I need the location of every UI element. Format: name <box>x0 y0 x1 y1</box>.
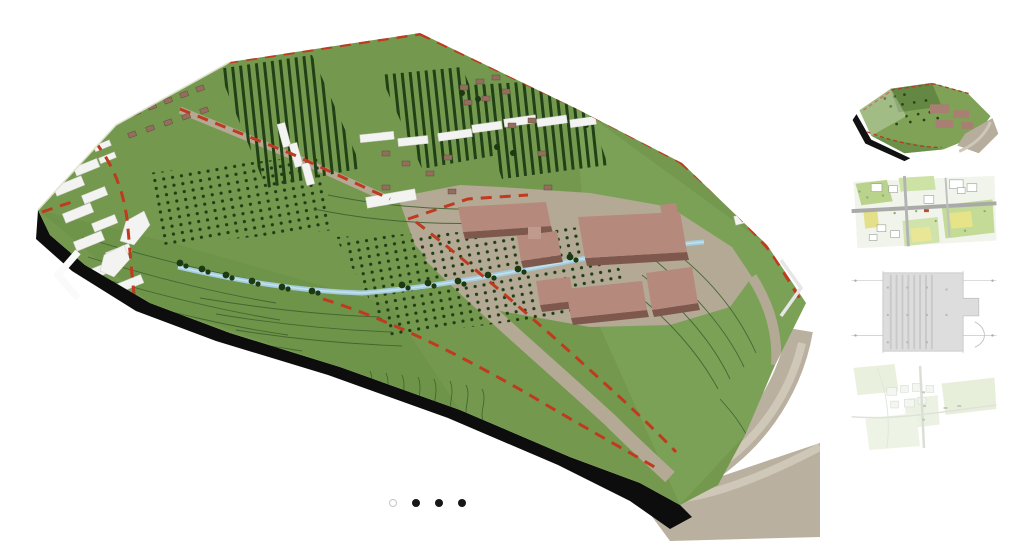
chevron-left-icon <box>50 248 86 302</box>
gallery-page <box>0 0 1024 542</box>
thumbnail-faded-plan-image <box>846 362 1002 452</box>
carousel-dot-2[interactable] <box>412 499 420 507</box>
thumbnail-sidebar <box>846 77 1002 452</box>
main-image-render <box>30 5 820 542</box>
carousel-dot-3[interactable] <box>435 499 443 507</box>
thumbnail-master-plan-image <box>846 172 1002 262</box>
carousel-dot-4[interactable] <box>458 499 466 507</box>
thumbnail-technical-plan[interactable] <box>846 267 1002 357</box>
thumbnail-faded-plan[interactable] <box>846 362 1002 452</box>
thumbnail-3d-model[interactable] <box>846 77 1002 167</box>
thumbnail-3d-model-image <box>846 77 1002 167</box>
thumbnail-technical-plan-image <box>846 267 1002 357</box>
carousel-prev-button[interactable] <box>50 248 86 302</box>
carousel-next-button[interactable] <box>776 256 806 320</box>
main-image-stage[interactable] <box>30 5 820 542</box>
carousel-dots <box>389 499 466 507</box>
thumbnail-master-plan[interactable] <box>846 172 1002 262</box>
chevron-right-icon <box>776 256 806 320</box>
carousel-dot-1[interactable] <box>389 499 397 507</box>
